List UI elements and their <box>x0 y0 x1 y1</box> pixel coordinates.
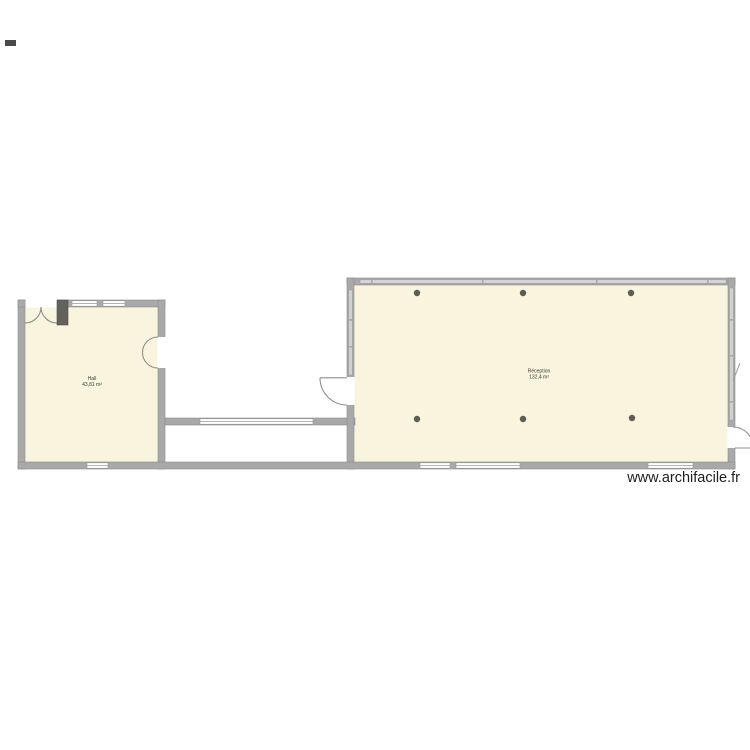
archifacile-watermark: www.archifacile.fr <box>626 470 740 486</box>
mullion <box>596 279 598 285</box>
mullion <box>729 319 735 321</box>
mullion <box>348 346 354 348</box>
hall-entry-opening[interactable] <box>26 299 57 307</box>
bottom-wall[interactable] <box>18 462 735 469</box>
reception-right-door-opening[interactable] <box>727 427 735 448</box>
mullion <box>371 279 373 285</box>
reception-area-label: 132,4 m² <box>529 375 549 381</box>
reception-left-door-opening[interactable] <box>346 377 354 405</box>
post[interactable] <box>628 290 634 296</box>
canvas-artifact <box>5 40 16 46</box>
hall-wall-left[interactable] <box>18 300 25 469</box>
hall-door-opening[interactable] <box>157 337 165 368</box>
mullion <box>729 355 735 357</box>
floorplan-canvas[interactable]: Hall 43,81 m² Réception 132,4 m² www.arc… <box>0 0 750 750</box>
mullion <box>348 319 354 321</box>
reception-left-door-swing-arc[interactable] <box>320 378 347 405</box>
post[interactable] <box>414 416 420 422</box>
hall-area-label: 43,81 m² <box>82 382 102 388</box>
post[interactable] <box>520 290 526 296</box>
mullion <box>482 279 484 285</box>
hall-wall-right[interactable] <box>158 300 165 469</box>
post[interactable] <box>520 416 526 422</box>
mullion <box>729 401 735 403</box>
post[interactable] <box>629 415 635 421</box>
hall-column[interactable] <box>57 300 68 325</box>
mullion <box>707 279 709 285</box>
post[interactable] <box>414 290 420 296</box>
